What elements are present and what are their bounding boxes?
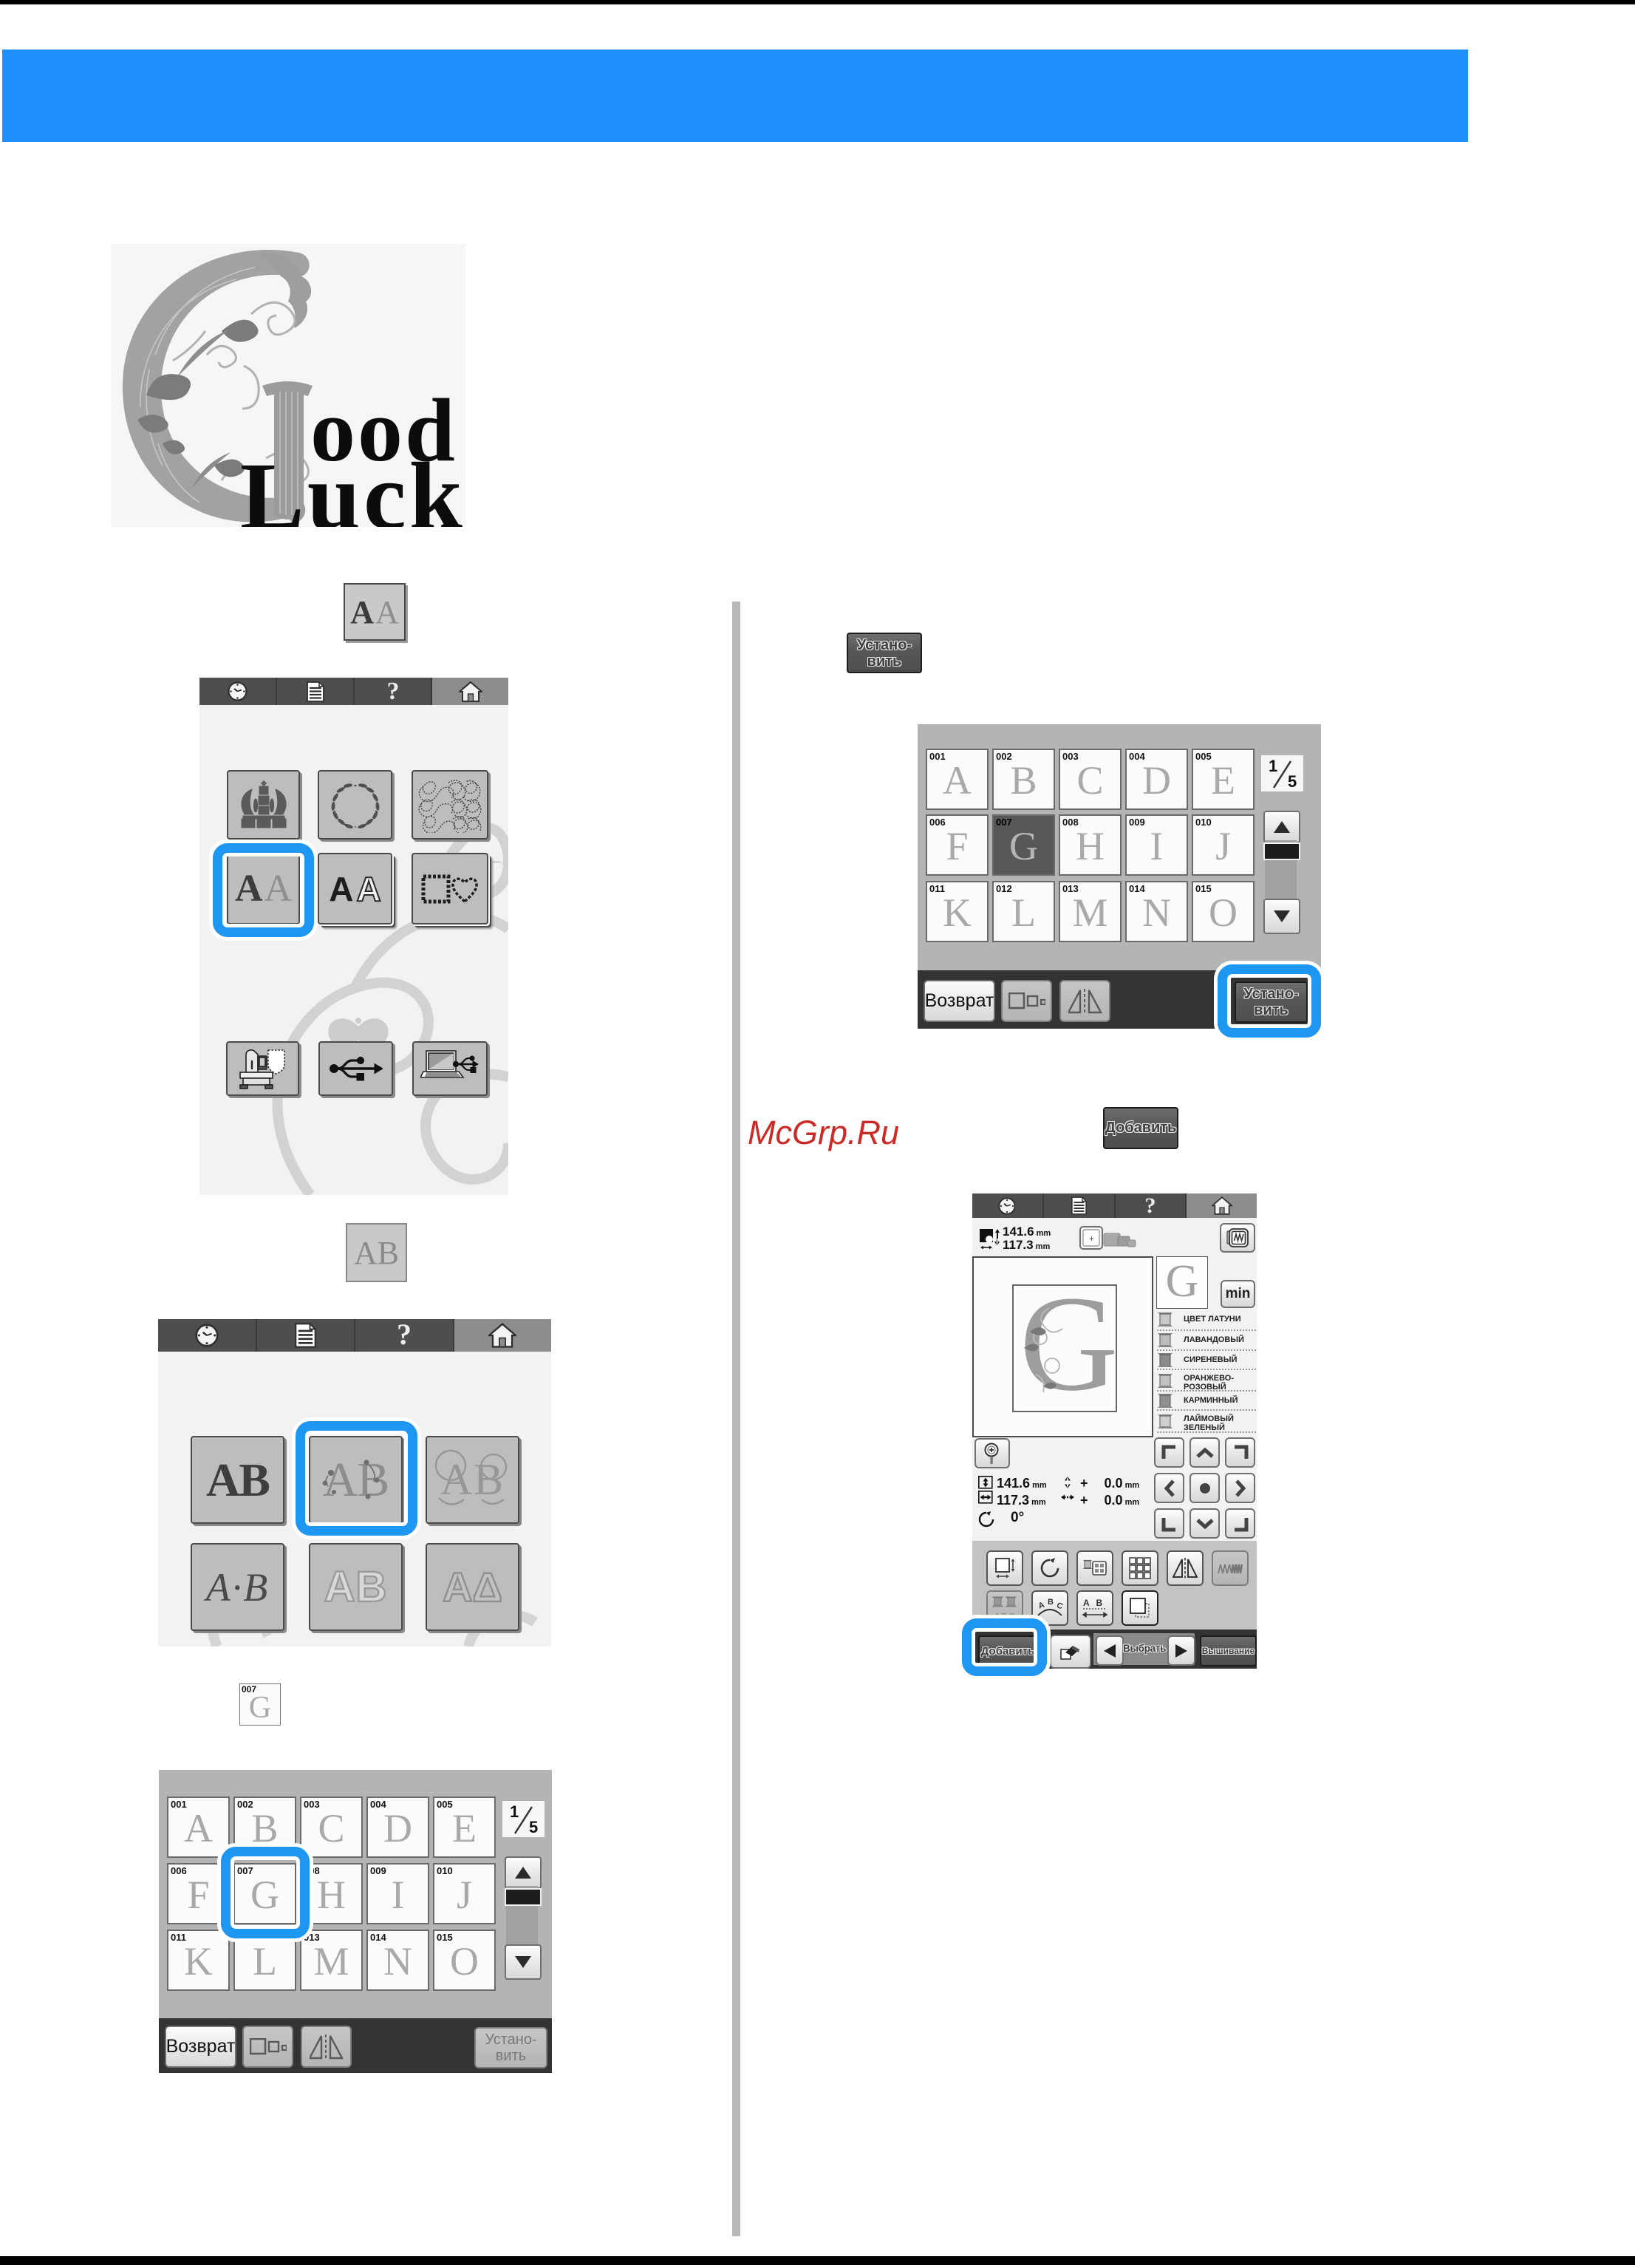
svg-text:5: 5 bbox=[529, 1818, 538, 1836]
svg-text:1: 1 bbox=[1269, 757, 1277, 775]
svg-text:5: 5 bbox=[1288, 772, 1297, 791]
svg-text:?: ? bbox=[397, 1321, 412, 1350]
svg-text:?: ? bbox=[1144, 1195, 1156, 1217]
svg-text:C: C bbox=[1055, 1601, 1063, 1611]
svg-text:Luck: Luck bbox=[240, 443, 465, 527]
svg-text:A: A bbox=[1037, 1601, 1046, 1611]
svg-text:1: 1 bbox=[510, 1802, 519, 1821]
svg-text:B: B bbox=[1048, 1598, 1054, 1607]
svg-text:+: + bbox=[1089, 1233, 1094, 1244]
svg-text:A B C: A B C bbox=[1083, 1598, 1108, 1608]
svg-text:?: ? bbox=[386, 679, 399, 704]
